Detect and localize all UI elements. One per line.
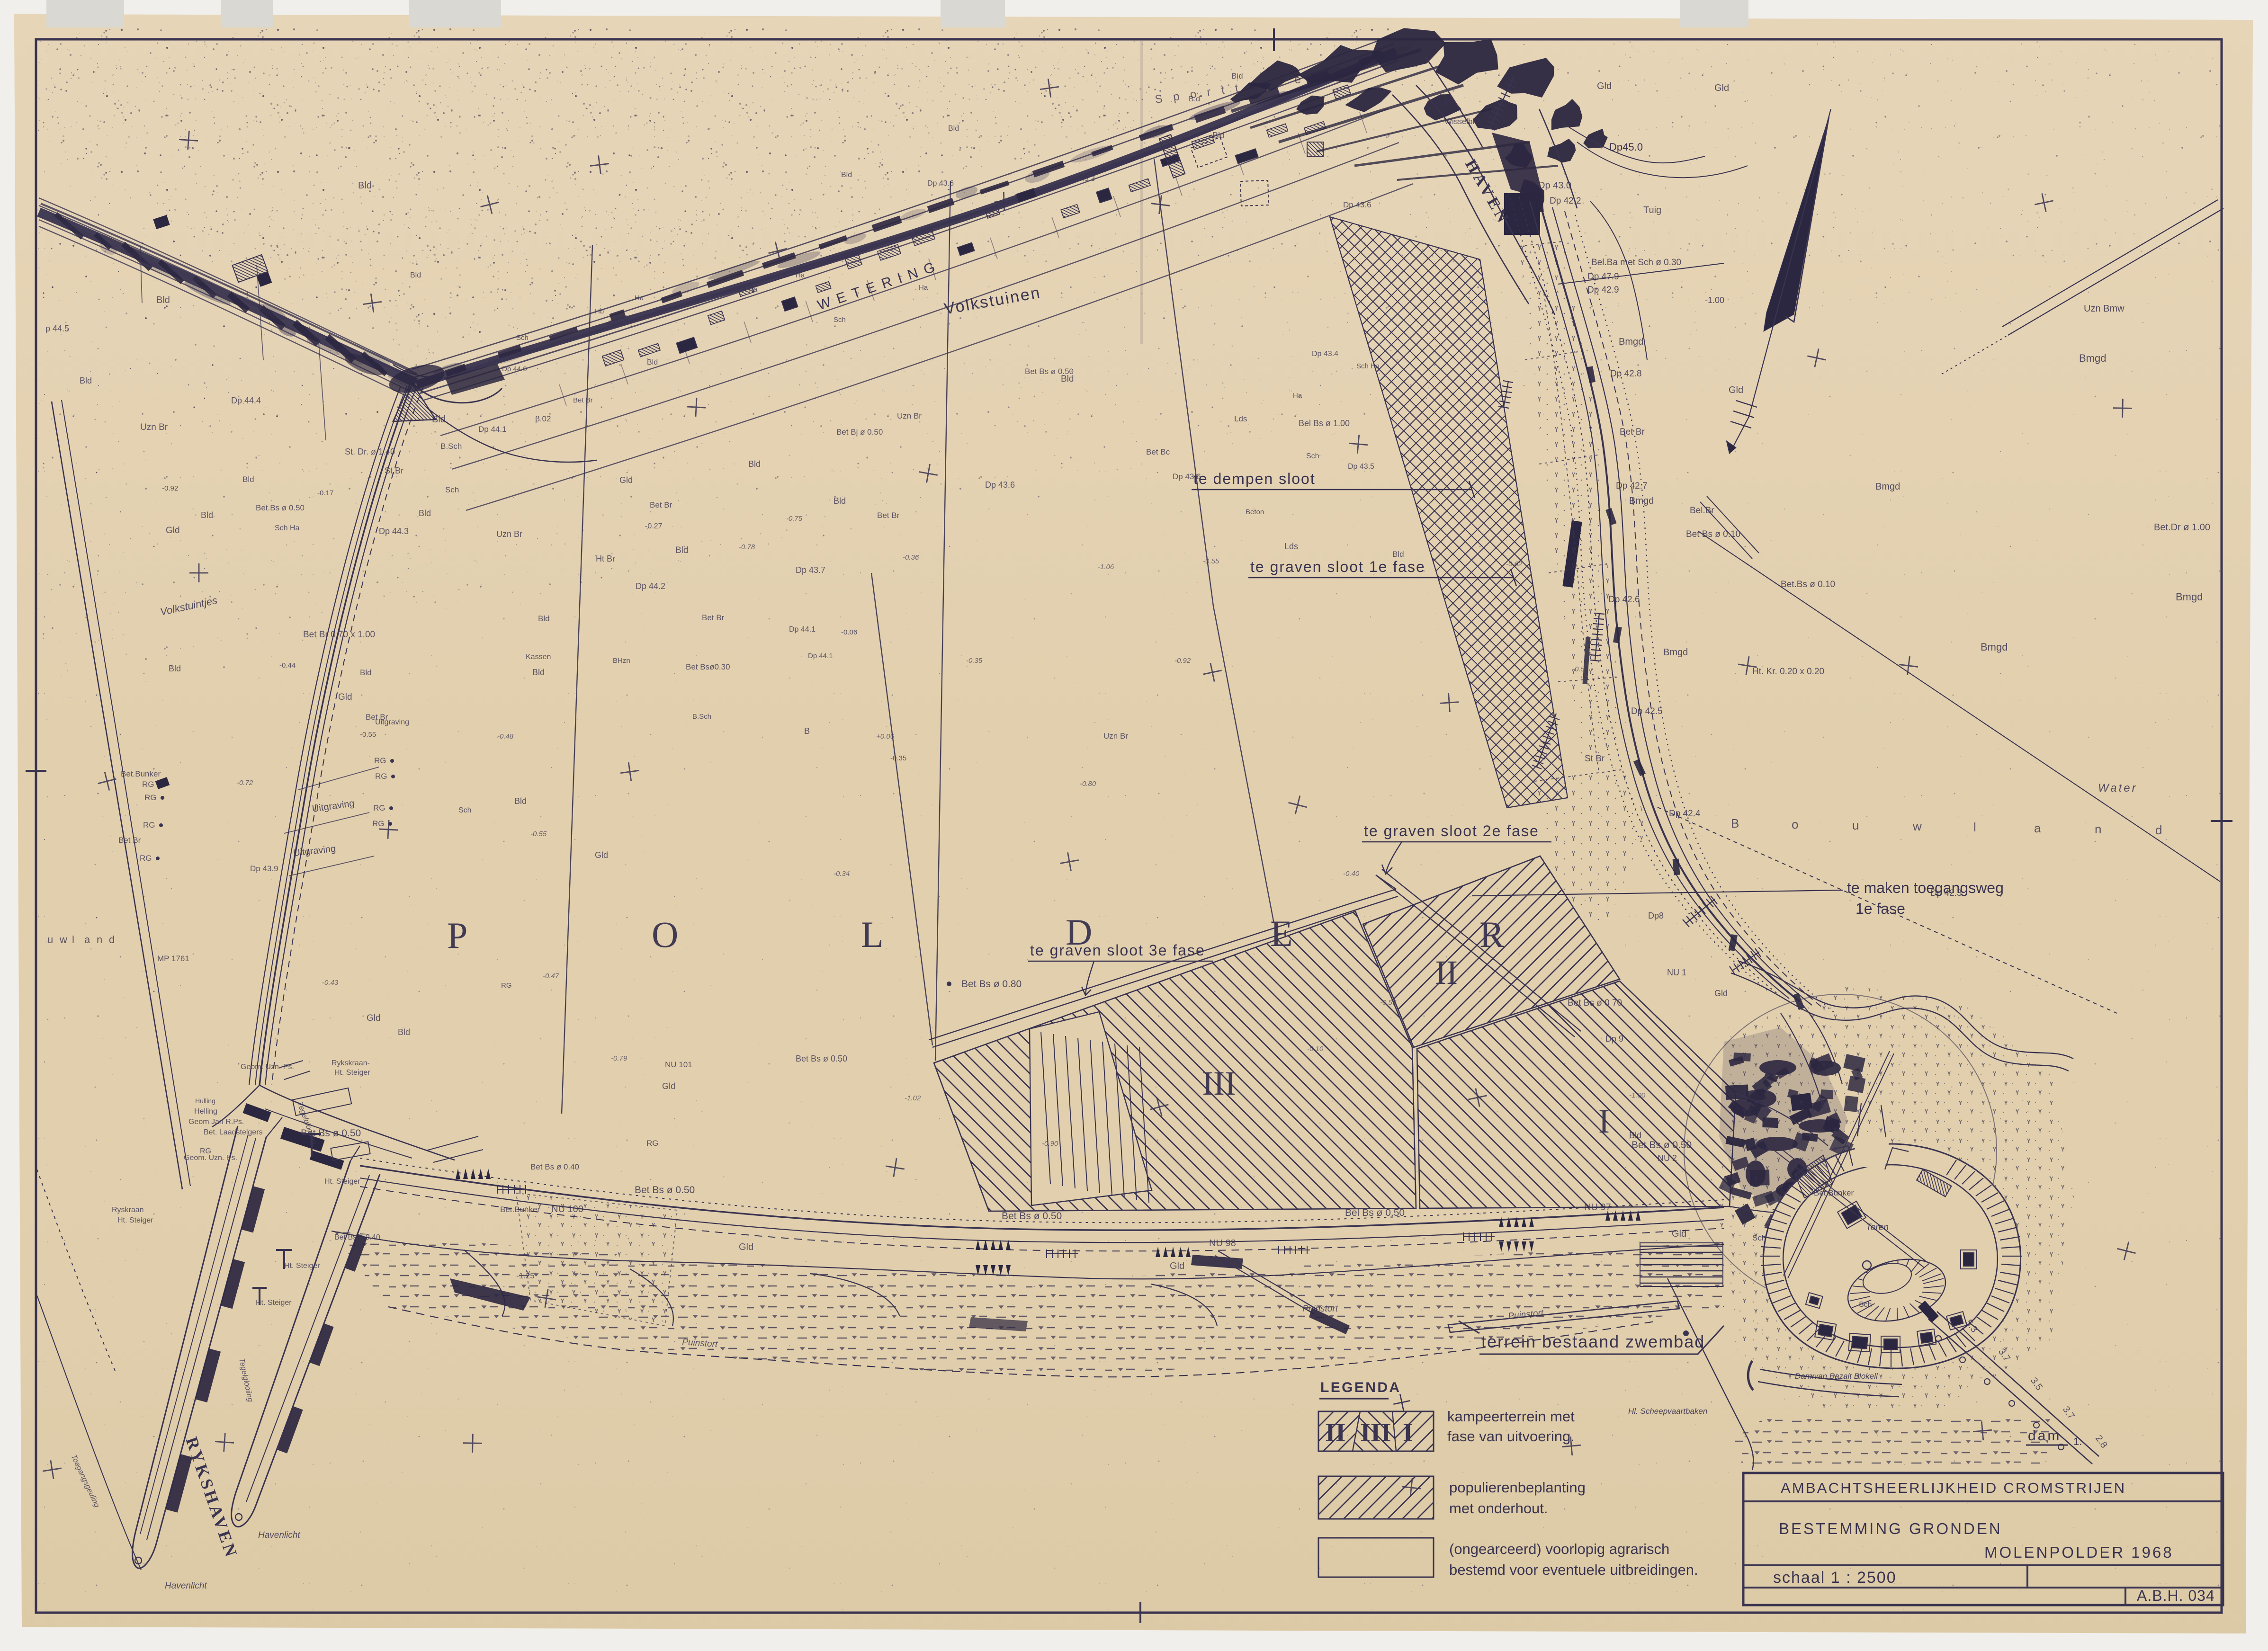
svg-text:Bet Bs ø 0.50: Bet Bs ø 0.50 (1632, 1140, 1692, 1151)
svg-text:met onderhout.: met onderhout. (1449, 1500, 1548, 1517)
svg-text:u: u (47, 934, 53, 946)
svg-text:Bet.Dr ø 1.00: Bet.Dr ø 1.00 (2154, 522, 2210, 533)
svg-text:Bet.Bunker: Bet.Bunker (121, 769, 161, 778)
svg-text:Bet Br: Bet Br (118, 836, 141, 845)
svg-text:n: n (2095, 822, 2101, 836)
svg-text:Bmgd: Bmgd (1875, 482, 1900, 492)
svg-text:RG: RG (501, 982, 512, 990)
svg-text:Sch: Sch (445, 485, 459, 494)
svg-text:schaal 1 : 2500: schaal 1 : 2500 (1773, 1569, 1897, 1587)
svg-text:Bld: Bld (201, 510, 213, 520)
svg-text:-0.47: -0.47 (543, 972, 559, 980)
svg-text:Dp 9: Dp 9 (1605, 1034, 1623, 1044)
svg-text:-0.55: -0.55 (530, 830, 547, 838)
svg-text:Dp 44.1: Dp 44.1 (808, 652, 833, 660)
svg-text:NU 98: NU 98 (1209, 1238, 1236, 1249)
svg-text:Havenlicht: Havenlicht (165, 1581, 207, 1591)
svg-text:Lds: Lds (1284, 542, 1298, 551)
svg-text:-0.36: -0.36 (903, 553, 919, 562)
svg-text:-0.55: -0.55 (1203, 557, 1219, 565)
svg-text:l: l (1973, 820, 1976, 834)
svg-text:Bet.Bunker: Bet.Bunker (500, 1205, 540, 1214)
svg-text:Sch Ha: Sch Ha (275, 524, 300, 532)
svg-text:Bid: Bid (1231, 71, 1243, 80)
svg-text:Dp 47.9: Dp 47.9 (1587, 272, 1619, 282)
svg-text:I: I (1403, 1418, 1413, 1447)
svg-text:AMBACHTSHEERLIJKHEID CROMSTRI: AMBACHTSHEERLIJKHEID CROMSTRIJEN (1781, 1480, 2126, 1496)
svg-text:-0.72: -0.72 (237, 779, 253, 787)
svg-text:o: o (1792, 817, 1798, 831)
svg-text:Uzn Br: Uzn Br (897, 411, 922, 420)
svg-text:Bld: Bld (80, 376, 92, 385)
svg-text:-0.35: -0.35 (966, 657, 983, 665)
svg-text:Bld: Bld (169, 664, 181, 673)
svg-text:Dp 43.7: Dp 43.7 (796, 565, 825, 575)
svg-text:Dp 44.3: Dp 44.3 (379, 527, 409, 536)
svg-text:-0.57: -0.57 (1380, 999, 1397, 1007)
svg-text:Uzn Br: Uzn Br (140, 422, 168, 432)
svg-text:-0.62: -0.62 (1506, 560, 1523, 568)
svg-text:Gld: Gld (739, 1242, 753, 1252)
svg-text:B.Sch: B.Sch (692, 713, 711, 721)
svg-text:-0.92: -0.92 (1174, 657, 1191, 665)
svg-text:B.Sch: B.Sch (440, 442, 462, 451)
svg-text:RG: RG (140, 854, 152, 863)
svg-text:L: L (861, 914, 884, 955)
svg-text:-0.78: -0.78 (739, 543, 755, 551)
svg-text:-0.55: -0.55 (360, 731, 376, 739)
svg-text:Bld: Bld (841, 171, 852, 179)
svg-text:Dp 44.4: Dp 44.4 (231, 396, 261, 405)
svg-text:Uzn Br: Uzn Br (496, 529, 522, 539)
svg-text:Ryskraan: Ryskraan (112, 1206, 144, 1214)
svg-text:te dempen sloot: te dempen sloot (1193, 470, 1316, 487)
svg-text:-0.40: -0.40 (1343, 870, 1360, 878)
svg-text:Ht. Steiger: Ht. Steiger (324, 1178, 360, 1186)
svg-text:Uzn Bmw: Uzn Bmw (2084, 303, 2125, 314)
svg-text:Bld: Bld (419, 509, 431, 518)
svg-text:-0.17: -0.17 (317, 489, 333, 497)
svg-text:Bld: Bld (834, 496, 846, 506)
svg-text:RG: RG (144, 793, 157, 802)
svg-text:-0.79: -0.79 (611, 1054, 628, 1062)
svg-text:te graven sloot 2e fase: te graven sloot 2e fase (1364, 822, 1539, 839)
svg-text:Dp 42.6: Dp 42.6 (1608, 595, 1640, 605)
svg-text:populierenbeplanting: populierenbeplanting (1449, 1479, 1586, 1496)
svg-text:NU 97: NU 97 (1584, 1202, 1611, 1213)
svg-text:Bet. Laadstelgers: Bet. Laadstelgers (204, 1128, 263, 1136)
svg-text:1.: 1. (2073, 1436, 2082, 1447)
svg-text:Sch: Sch (1859, 1301, 1872, 1309)
svg-text:Ht. Kr. 0.20 x 0.20: Ht. Kr. 0.20 x 0.20 (1752, 667, 1824, 677)
svg-text:Gld: Gld (1714, 989, 1728, 998)
svg-text:Hl. Scheepvaartbaken: Hl. Scheepvaartbaken (1628, 1407, 1707, 1416)
svg-text:Bld: Bld (647, 358, 658, 366)
svg-text:terrein bestaand zwembad: terrein bestaand zwembad (1481, 1332, 1705, 1351)
svg-text:Gld: Gld (1729, 385, 1743, 395)
svg-text:St Br: St Br (1585, 754, 1605, 764)
svg-text:A.B.H. 034: A.B.H. 034 (2137, 1587, 2215, 1604)
svg-text:Bld: Bld (532, 668, 545, 677)
svg-text:Bld: Bld (538, 614, 550, 623)
svg-text:RG: RG (142, 780, 154, 789)
svg-text:RG: RG (143, 821, 155, 830)
svg-text:Geom Jan R.Ps.: Geom Jan R.Ps. (188, 1118, 244, 1126)
svg-text:Gld: Gld (619, 475, 633, 485)
svg-text:Dp 42.7: Dp 42.7 (1616, 481, 1648, 491)
svg-text:Bet Bs ø 0.40: Bet Bs ø 0.40 (530, 1162, 579, 1171)
svg-text:-0.80: -0.80 (1080, 780, 1096, 788)
svg-text:Hulling: Hulling (195, 1097, 215, 1105)
svg-text:Bmgd: Bmgd (1981, 641, 2008, 653)
svg-text:Bet Br 0.70 x 1.00: Bet Br 0.70 x 1.00 (303, 630, 375, 640)
svg-text:Bet Bs ø 0.80: Bet Bs ø 0.80 (961, 979, 1022, 990)
svg-text:Bel Bs ø 1.00: Bel Bs ø 1.00 (1299, 419, 1350, 428)
svg-text:BESTEMMING GRONDEN: BESTEMMING GRONDEN (1779, 1520, 2002, 1537)
svg-text:-0.35: -0.35 (890, 754, 906, 762)
svg-text:P: P (447, 915, 467, 956)
svg-text:Tuig: Tuig (1643, 205, 1661, 215)
svg-text:Gld: Gld (166, 526, 180, 535)
svg-text:-1.02: -1.02 (905, 1094, 921, 1102)
svg-text:Bet Bs ø 0.50: Bet Bs ø 0.50 (1002, 1211, 1062, 1222)
svg-text:Ht. Steiger: Ht. Steiger (284, 1262, 320, 1270)
svg-text:NU 2: NU 2 (1658, 1153, 1677, 1163)
svg-text:te graven sloot 1e fase: te graven sloot 1e fase (1250, 558, 1425, 575)
svg-text:dam: dam (2028, 1428, 2061, 1444)
svg-text:Dp 43.9: Dp 43.9 (250, 864, 278, 873)
svg-text:Sch: Sch (458, 806, 472, 814)
svg-text:Bet Bc: Bet Bc (1146, 447, 1170, 456)
svg-text:Dp45.0: Dp45.0 (1609, 141, 1643, 153)
svg-text:Dp 43.4: Dp 43.4 (1312, 350, 1338, 358)
svg-text:Bet Br: Bet Br (877, 511, 900, 520)
svg-text:Sch: Sch (516, 334, 529, 342)
svg-text:Bet Br: Bet Br (702, 613, 725, 622)
svg-text:+0.06: +0.06 (876, 732, 895, 741)
svg-text:Bld: Bld (1629, 1131, 1641, 1140)
svg-text:Dp 42.5: Dp 42.5 (1631, 706, 1663, 716)
svg-text:Dp 42.3: Dp 42.3 (1930, 888, 1962, 898)
svg-text:NU 101: NU 101 (665, 1060, 692, 1069)
svg-text:Dp 43.5: Dp 43.5 (1348, 463, 1374, 471)
svg-text:-0.10: -0.10 (1307, 1045, 1324, 1053)
svg-text:Beton: Beton (1246, 508, 1264, 516)
svg-text:St. Dr. ø 1.40: St. Dr. ø 1.40 (345, 447, 395, 456)
svg-text:(ongearceerd) voorlopig agrari: (ongearceerd) voorlopig agrarisch (1449, 1541, 1669, 1557)
svg-text:Dp 43.6: Dp 43.6 (985, 480, 1015, 490)
svg-text:Dp 44.1: Dp 44.1 (789, 625, 816, 634)
svg-text:Gld: Gld (1714, 83, 1729, 93)
svg-text:Bmgd: Bmgd (1619, 337, 1643, 347)
svg-text:Gld: Gld (367, 1013, 381, 1023)
svg-text:Dp 44.1: Dp 44.1 (478, 425, 507, 434)
svg-text:a: a (2034, 821, 2041, 835)
svg-text:kampeerterrein met: kampeerterrein met (1447, 1408, 1575, 1425)
svg-text:B: B (804, 726, 810, 736)
svg-text:p 44.5: p 44.5 (45, 324, 69, 333)
svg-text:-0.27: -0.27 (645, 522, 663, 530)
svg-text:RG: RG (200, 1147, 211, 1155)
svg-text:Ha: Ha (796, 271, 805, 279)
svg-text:-1.00: -1.00 (1705, 295, 1724, 305)
svg-text:w: w (1912, 819, 1922, 833)
svg-text:Dp 43.3: Dp 43.3 (1068, 175, 1095, 183)
svg-text:Helling: Helling (194, 1107, 217, 1116)
svg-text:Bel.Br: Bel.Br (1690, 506, 1714, 516)
svg-text:Bel.Ba met Sch ø 0.30: Bel.Ba met Sch ø 0.30 (1591, 258, 1681, 268)
svg-text:Bet Br: Bet Br (573, 396, 593, 404)
svg-text:Bet Bs ø 0.50: Bet Bs ø 0.50 (1025, 367, 1074, 376)
svg-text:Dp 43.6: Dp 43.6 (927, 179, 954, 187)
svg-text:BHzn: BHzn (613, 657, 630, 665)
svg-text:Ht. Steiger: Ht. Steiger (256, 1299, 292, 1307)
svg-text:-0.34: -0.34 (834, 870, 850, 878)
svg-text:Bet Br: Bet Br (1620, 427, 1645, 437)
svg-text:-0.92: -0.92 (162, 484, 178, 492)
svg-text:Bld: Bld (1212, 131, 1225, 140)
svg-text:LEGENDA: LEGENDA (1320, 1380, 1401, 1395)
svg-text:Bet.Bs ø 0.50: Bet.Bs ø 0.50 (256, 503, 305, 512)
svg-text:Bet Bsø0.30: Bet Bsø0.30 (686, 662, 730, 671)
svg-text:B: B (1731, 816, 1739, 830)
svg-text:Bld: Bld (410, 271, 421, 279)
svg-text:Ha: Ha (635, 294, 644, 302)
svg-text:Bet Bs ø 0.50: Bet Bs ø 0.50 (635, 1185, 695, 1196)
svg-text:III: III (1202, 1064, 1236, 1102)
svg-text:-1.00: -1.00 (1629, 1091, 1646, 1099)
svg-text:RG: RG (375, 772, 387, 781)
svg-text:Ht Br: Ht Br (596, 554, 615, 563)
svg-text:-0.43: -0.43 (322, 979, 339, 987)
svg-text:O: O (652, 914, 678, 955)
svg-text:RG: RG (646, 1139, 659, 1148)
svg-text:Uitgraving: Uitgraving (375, 718, 409, 726)
svg-text:Bld: Bld (360, 668, 372, 677)
svg-text:Bet Bs ø 0 70: Bet Bs ø 0 70 (1568, 998, 1622, 1008)
svg-text:B.d: B.d (1189, 95, 1200, 103)
svg-text:n: n (97, 934, 102, 946)
svg-text:Bmgd: Bmgd (1629, 496, 1654, 506)
svg-text:Bet Br: Bet Br (650, 500, 672, 509)
svg-text:Bld: Bld (748, 459, 761, 469)
svg-text:Dp 43.6: Dp 43.6 (1343, 200, 1372, 209)
svg-text:-0.50: -0.50 (1435, 99, 1451, 107)
svg-text:Bmgd: Bmgd (1663, 647, 1688, 658)
svg-text:Bet Bj ø 0.50: Bet Bj ø 0.50 (836, 428, 883, 437)
svg-text:Ht. Steiger: Ht. Steiger (117, 1216, 153, 1224)
svg-text:Bet Bs ø 0.50: Bet Bs ø 0.50 (796, 1054, 847, 1063)
svg-text:-0.44: -0.44 (279, 661, 296, 669)
svg-text:II: II (1325, 1418, 1346, 1447)
svg-text:Ht. Steiger: Ht. Steiger (334, 1069, 370, 1077)
svg-text:-0.90: -0.90 (1042, 1140, 1058, 1148)
svg-text:Hb: Hb (595, 307, 604, 315)
svg-text:Bmgd: Bmgd (2176, 591, 2203, 603)
svg-text:Ha: Ha (919, 284, 928, 292)
svg-text:Uzn Br: Uzn Br (1103, 732, 1128, 741)
svg-text:Sch Ha: Sch Ha (1356, 362, 1380, 370)
svg-text:Sch Ha: Sch Ha (734, 286, 758, 294)
svg-text:Bld: Bld (1392, 550, 1404, 559)
svg-text:te maken toegangsweg: te maken toegangsweg (1847, 879, 2004, 896)
svg-text:-0.48: -0.48 (497, 732, 514, 741)
svg-text:Lds: Lds (1234, 414, 1247, 423)
svg-text:fase van uitvoering.: fase van uitvoering. (1447, 1428, 1575, 1445)
svg-text:III: III (1360, 1418, 1391, 1447)
svg-text:Bet Bs ø 0.40: Bet Bs ø 0.40 (334, 1233, 380, 1241)
svg-text:NU 1: NU 1 (1667, 968, 1686, 977)
svg-text:Water: Water (2098, 782, 2138, 794)
svg-text:Dp 43.6: Dp 43.6 (1173, 472, 1201, 481)
svg-text:RG: RG (373, 803, 385, 812)
svg-text:Sch: Sch (834, 316, 846, 324)
svg-text:Dp 43.0: Dp 43.0 (1538, 180, 1571, 191)
svg-text:Dp 44.2: Dp 44.2 (636, 581, 665, 591)
svg-text:-1.25: -1.25 (516, 1271, 535, 1280)
svg-text:Gld: Gld (662, 1081, 675, 1091)
svg-text:Kassen: Kassen (526, 653, 551, 661)
svg-text:te graven sloot 3e fase: te graven sloot 3e fase (1030, 942, 1205, 959)
svg-text:II: II (1435, 954, 1458, 991)
svg-text:Bet Bs ø 0.10: Bet Bs ø 0.10 (1686, 529, 1740, 539)
svg-text:Bmgd: Bmgd (2079, 352, 2106, 364)
svg-text:Havenlicht: Havenlicht (258, 1530, 300, 1540)
svg-text:Ha: Ha (1293, 392, 1302, 400)
svg-text:u: u (1852, 818, 1859, 832)
svg-text:RG: RG (374, 756, 386, 765)
svg-text:Dp 42.2: Dp 42.2 (1550, 196, 1581, 206)
svg-text:Gld: Gld (1170, 1261, 1184, 1271)
svg-text:Bld: Bld (675, 545, 688, 555)
svg-text:Dp8: Dp8 (1648, 911, 1664, 920)
svg-text:Dp 42.8: Dp 42.8 (1610, 369, 1642, 379)
svg-text:Bet.Bs ø 0.10: Bet.Bs ø 0.10 (1781, 580, 1835, 589)
svg-text:l: l (72, 934, 74, 946)
svg-text:Gld: Gld (1672, 1229, 1686, 1239)
svg-text:Bel Bs ø 0.50: Bel Bs ø 0.50 (1345, 1207, 1405, 1218)
svg-text:-0.75: -0.75 (786, 515, 803, 523)
svg-text:Gld: Gld (595, 850, 608, 860)
svg-text:Bld: Bld (398, 1027, 410, 1037)
svg-text:1e fase: 1e fase (1856, 900, 1905, 917)
svg-text:Dp 42.4: Dp 42.4 (1669, 809, 1701, 819)
svg-text:Gld: Gld (1597, 81, 1612, 91)
svg-text:MP 1761: MP 1761 (157, 954, 189, 963)
svg-text:w: w (59, 934, 67, 946)
svg-text:a: a (84, 934, 90, 946)
svg-text:Bld: Bld (948, 125, 959, 133)
svg-text:Bld: Bld (358, 180, 372, 191)
svg-text:-0.53: -0.53 (1572, 665, 1589, 673)
svg-text:Gld: Gld (338, 692, 352, 702)
svg-text:β.02: β.02 (535, 414, 551, 423)
svg-text:Rykskraan-: Rykskraan- (332, 1059, 370, 1067)
svg-text:I: I (1598, 1102, 1610, 1140)
svg-text:St.Br: St.Br (385, 466, 403, 475)
svg-text:Wisselblok: Wisselblok (1444, 117, 1483, 126)
svg-text:Bld: Bld (242, 475, 254, 484)
svg-text:-0.06: -0.06 (841, 628, 857, 636)
svg-text:Dp 44.0: Dp 44.0 (502, 365, 527, 373)
svg-text:MOLENPOLDER 1968: MOLENPOLDER 1968 (1984, 1544, 2174, 1561)
svg-text:d: d (109, 934, 115, 946)
svg-text:Bld: Bld (156, 295, 170, 305)
svg-text:Sch: Sch (1306, 452, 1319, 460)
svg-text:Dp 42.9: Dp 42.9 (1587, 285, 1619, 295)
svg-text:Dam van Bazalt Blokell: Dam van Bazalt Blokell (1795, 1372, 1878, 1381)
svg-text:-1.06: -1.06 (1098, 563, 1114, 571)
svg-text:bestemd voor eventuele uitbrei: bestemd voor eventuele uitbreidingen. (1449, 1562, 1698, 1578)
svg-text:Bld: Bld (514, 796, 527, 806)
svg-text:d: d (2155, 823, 2162, 837)
svg-text:Geom. Uzn. Ps.: Geom. Uzn. Ps. (241, 1063, 294, 1071)
svg-text:RG: RG (372, 819, 385, 828)
